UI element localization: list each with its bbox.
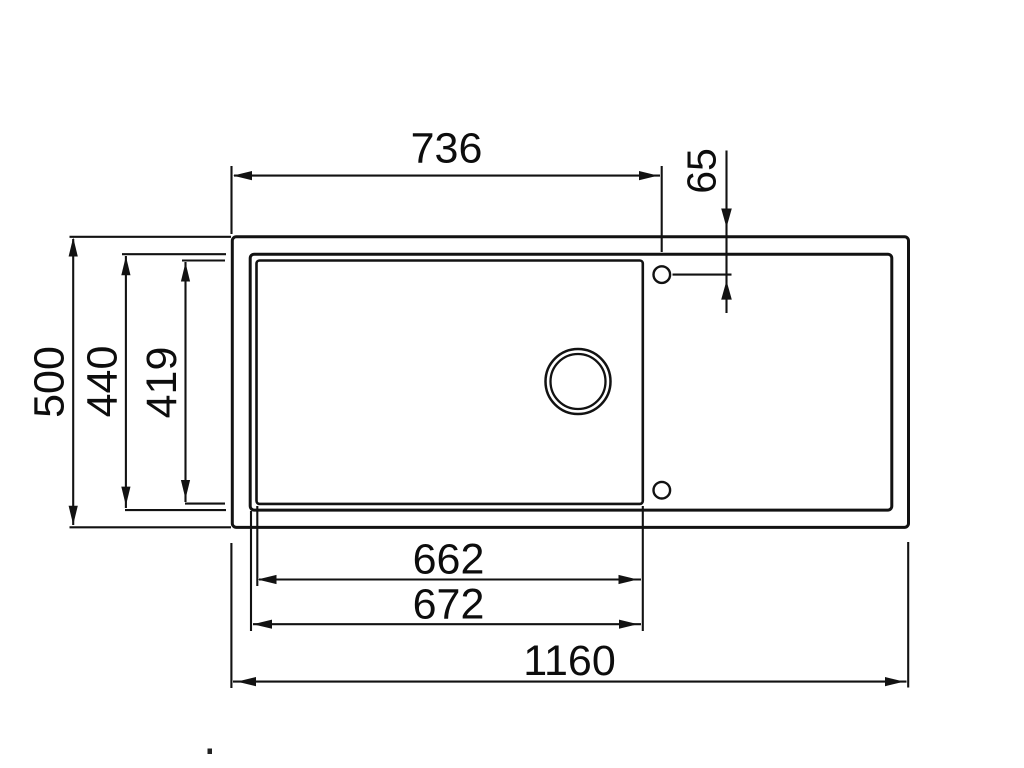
- svg-text:736: 736: [411, 125, 483, 173]
- svg-text:662: 662: [413, 536, 485, 584]
- svg-text:500: 500: [26, 346, 74, 418]
- svg-text:65: 65: [679, 148, 725, 194]
- svg-text:419: 419: [138, 347, 186, 419]
- svg-text:672: 672: [413, 580, 485, 628]
- svg-text:440: 440: [78, 346, 126, 418]
- svg-text:1160: 1160: [523, 637, 615, 685]
